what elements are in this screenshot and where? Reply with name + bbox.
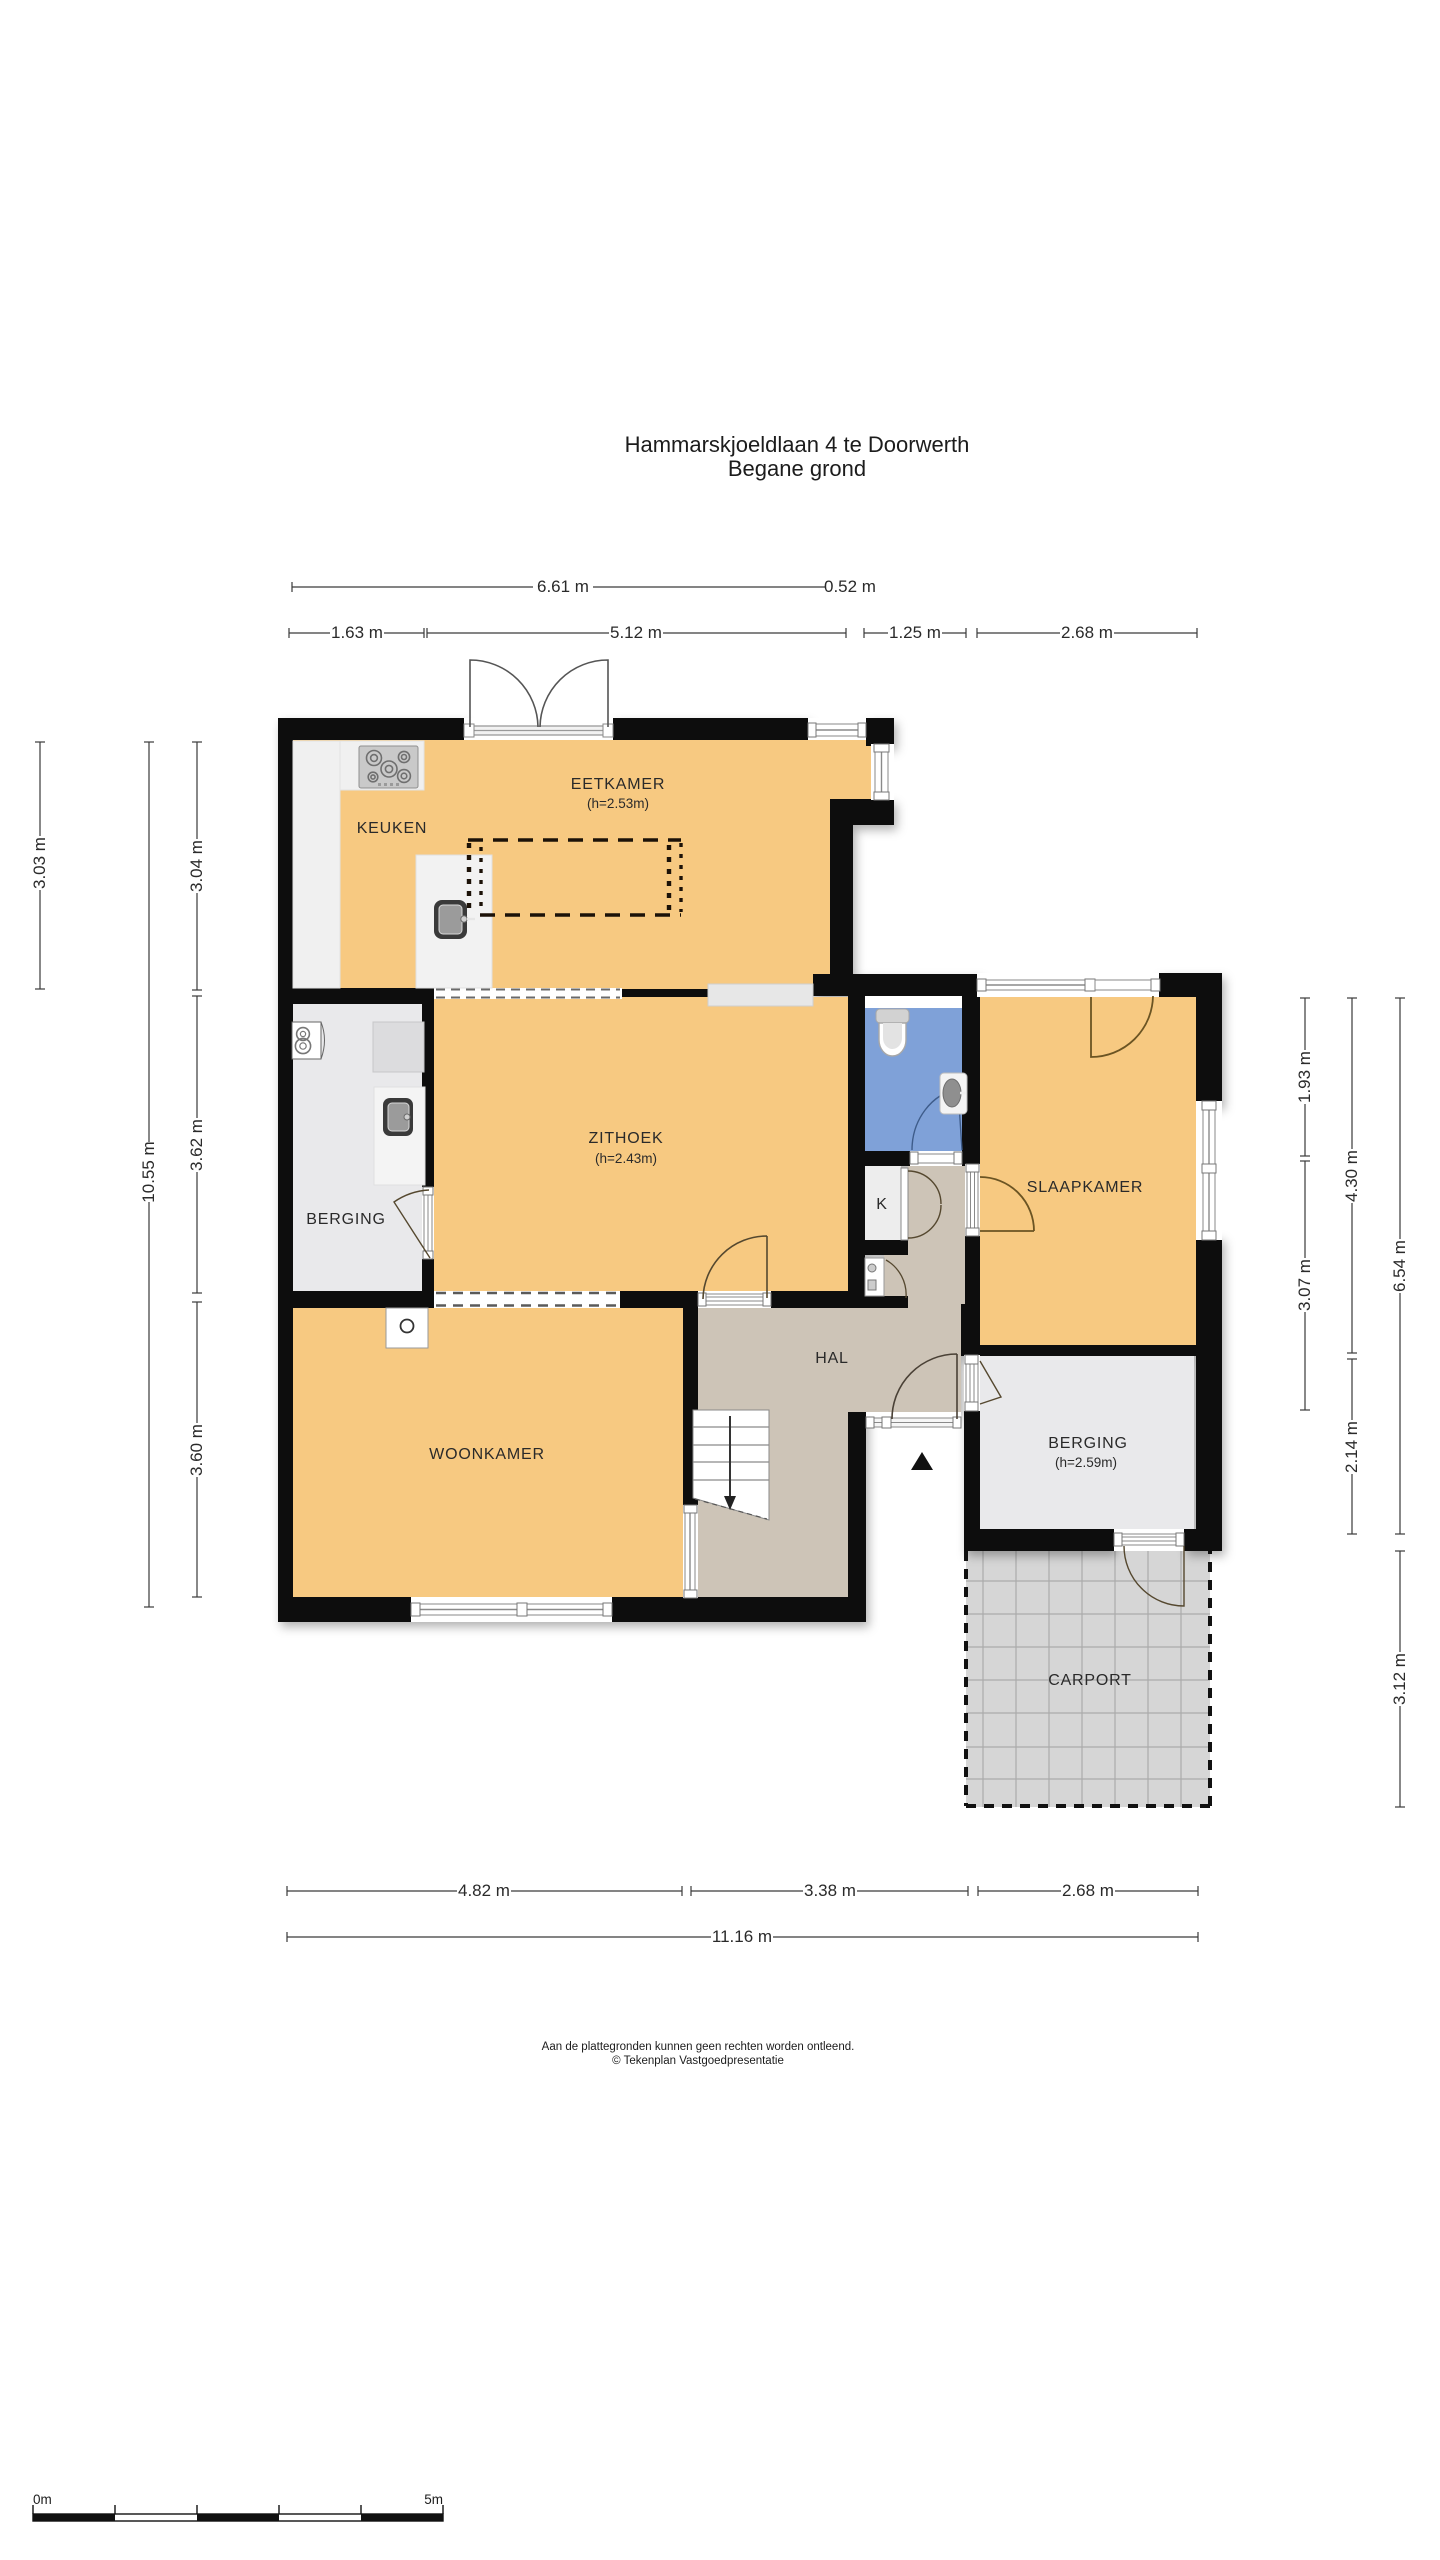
svg-text:ZITHOEK: ZITHOEK bbox=[589, 1130, 664, 1147]
svg-text:5m: 5m bbox=[424, 2492, 443, 2507]
svg-text:(h=2.53m): (h=2.53m) bbox=[587, 796, 649, 811]
svg-text:CARPORT: CARPORT bbox=[1048, 1672, 1132, 1689]
svg-text:(h=2.59m): (h=2.59m) bbox=[1055, 1455, 1117, 1470]
svg-text:2.68 m: 2.68 m bbox=[1061, 623, 1113, 642]
svg-text:4.82 m: 4.82 m bbox=[458, 1881, 510, 1900]
svg-text:BERGING: BERGING bbox=[1048, 1435, 1127, 1452]
svg-text:(h=2.43m): (h=2.43m) bbox=[595, 1151, 657, 1166]
svg-text:11.16 m: 11.16 m bbox=[712, 1927, 772, 1946]
svg-text:KEUKEN: KEUKEN bbox=[357, 820, 428, 837]
svg-text:Hammarskjoeldlaan 4 te Doorwer: Hammarskjoeldlaan 4 te Doorwerth bbox=[625, 432, 970, 457]
svg-text:Begane grond: Begane grond bbox=[728, 456, 866, 481]
svg-text:3.38 m: 3.38 m bbox=[804, 1881, 856, 1900]
svg-text:3.60 m: 3.60 m bbox=[187, 1424, 206, 1476]
svg-text:BERGING: BERGING bbox=[306, 1211, 385, 1228]
svg-text:3.04 m: 3.04 m bbox=[187, 840, 206, 892]
svg-text:3.03 m: 3.03 m bbox=[30, 837, 49, 889]
svg-text:6.54 m: 6.54 m bbox=[1390, 1240, 1409, 1292]
svg-text:0.52 m: 0.52 m bbox=[824, 577, 876, 596]
svg-text:Aan de plattegronden kunnen ge: Aan de plattegronden kunnen geen rechten… bbox=[542, 2041, 855, 2053]
svg-text:4.30 m: 4.30 m bbox=[1342, 1150, 1361, 1202]
svg-text:2.14 m: 2.14 m bbox=[1342, 1421, 1361, 1473]
svg-text:1.63 m: 1.63 m bbox=[331, 623, 383, 642]
svg-text:HAL: HAL bbox=[815, 1350, 849, 1367]
svg-text:3.07 m: 3.07 m bbox=[1295, 1259, 1314, 1311]
svg-text:5.12 m: 5.12 m bbox=[610, 623, 662, 642]
svg-text:2.68 m: 2.68 m bbox=[1062, 1881, 1114, 1900]
svg-text:6.61 m: 6.61 m bbox=[537, 577, 589, 596]
svg-text:3.62 m: 3.62 m bbox=[187, 1119, 206, 1171]
svg-text:K: K bbox=[876, 1196, 887, 1213]
svg-text:1.25 m: 1.25 m bbox=[889, 623, 941, 642]
svg-text:3.12 m: 3.12 m bbox=[1390, 1653, 1409, 1705]
svg-text:10.55 m: 10.55 m bbox=[139, 1141, 158, 1202]
svg-text:WOONKAMER: WOONKAMER bbox=[429, 1446, 545, 1463]
svg-text:1.93 m: 1.93 m bbox=[1295, 1051, 1314, 1103]
svg-text:0m: 0m bbox=[33, 2492, 52, 2507]
svg-text:© Tekenplan Vastgoedpresentati: © Tekenplan Vastgoedpresentatie bbox=[612, 2055, 784, 2067]
svg-text:EETKAMER: EETKAMER bbox=[571, 776, 665, 793]
svg-text:SLAAPKAMER: SLAAPKAMER bbox=[1027, 1179, 1143, 1196]
